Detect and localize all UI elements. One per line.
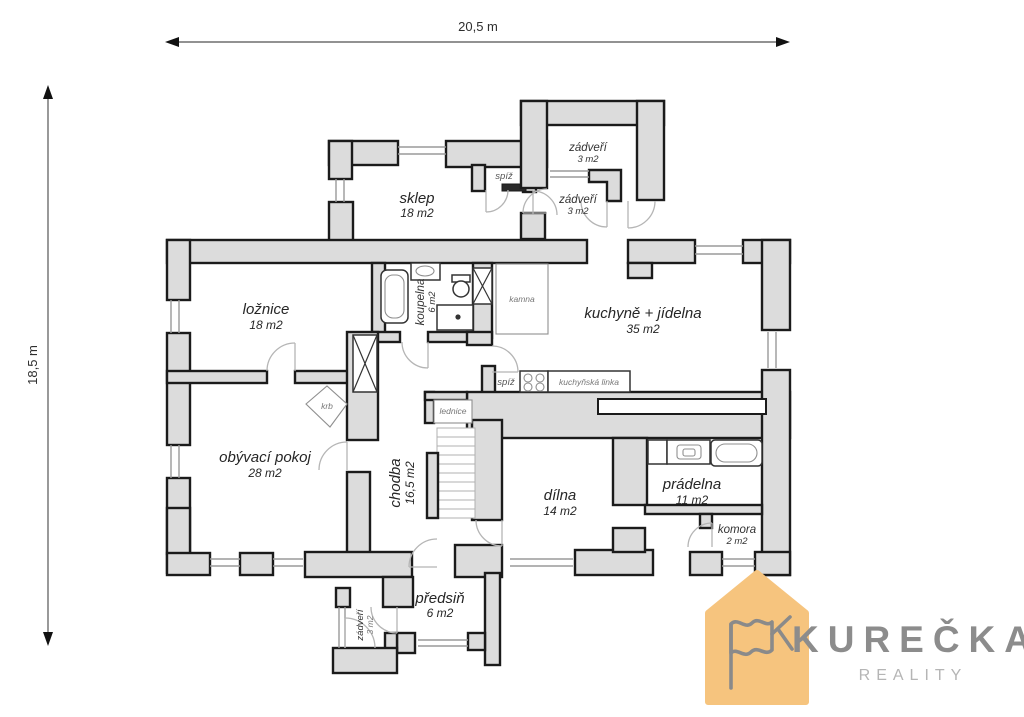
- room-area-kuchyne: 35 m2: [626, 322, 660, 336]
- floor-plan-page: 20,5 m 18,5 m: [0, 0, 1024, 717]
- height-dimension: 18,5 m: [25, 85, 53, 646]
- room-label-obyvaci: obývací pokoj: [219, 449, 311, 466]
- window: [722, 559, 755, 566]
- room-area-zadveri-stredni: 3 m2: [567, 206, 589, 217]
- room-label-pradelna: prádelna: [662, 476, 721, 493]
- room-label-kamna: kamna: [509, 294, 535, 304]
- bath-counter: [437, 305, 473, 330]
- room-label-chodba: chodba: [387, 458, 404, 507]
- room-area-chodba: 16,5 m2: [403, 461, 417, 505]
- bathtub-icon: [711, 440, 762, 466]
- logo-brand-text: KUREČKA: [792, 618, 1024, 660]
- window: [398, 147, 446, 154]
- window: [171, 300, 179, 333]
- room-label-dilna: dílna: [544, 487, 577, 504]
- room-area-zadveri-dolni: 3 m2: [365, 615, 375, 634]
- window: [768, 332, 776, 368]
- floor-plan: 20,5 m 18,5 m: [0, 0, 1024, 717]
- window: [210, 559, 240, 566]
- room-label-komora: komora: [718, 524, 756, 536]
- window: [550, 171, 589, 177]
- room-area-komora: 2 m2: [725, 536, 748, 547]
- door: [267, 343, 295, 371]
- room-area-obyvaci: 28 m2: [247, 466, 282, 480]
- window: [273, 559, 303, 566]
- room-area-koupelna: 6 m2: [427, 291, 438, 313]
- room-area-loznice: 18 m2: [249, 318, 283, 332]
- stairs: [427, 428, 475, 518]
- logo: KUREČKA REALITY: [708, 573, 1024, 702]
- room-label-koupelna: koupelna: [415, 279, 427, 326]
- washing-machine-icon: [667, 440, 710, 464]
- room-area-pradelna: 11 m2: [676, 493, 709, 507]
- stove-icon: [520, 371, 548, 392]
- room-area-dilna: 14 m2: [543, 504, 577, 518]
- room-label-zadveri-horni: zádveří: [568, 142, 609, 154]
- room-label-predsin: předsiň: [414, 590, 464, 607]
- window: [695, 246, 743, 254]
- logo-subtitle-text: REALITY: [859, 667, 968, 684]
- door: [533, 191, 557, 215]
- room-label-spiz-horni: spíž: [495, 171, 513, 182]
- width-dimension: 20,5 m: [165, 19, 790, 47]
- window: [171, 445, 179, 478]
- door: [319, 442, 347, 470]
- window: [418, 640, 468, 646]
- room-area-zadveri-horni: 3 m2: [577, 154, 599, 165]
- label-kuchynska-linka: kuchyňská linka: [559, 377, 619, 387]
- room-area-sklep: 18 m2: [400, 206, 434, 220]
- kitchen-wall-counter: [598, 399, 766, 414]
- door: [409, 539, 437, 567]
- room-area-predsin: 6 m2: [427, 606, 454, 620]
- stair-handrail: [427, 453, 438, 518]
- door: [628, 201, 655, 228]
- walls: [167, 101, 790, 673]
- room-label-kuchyne: kuchyně + jídelna: [584, 305, 701, 322]
- chimney-shaft-icon: [353, 335, 377, 392]
- label-lednice: lednice: [440, 406, 467, 416]
- width-dimension-label: 20,5 m: [458, 19, 498, 34]
- window: [336, 179, 344, 202]
- label-krb: krb: [321, 401, 333, 411]
- room-label-spiz-dolni: spíž: [497, 377, 515, 388]
- window: [339, 607, 345, 648]
- door: [486, 190, 508, 212]
- door: [476, 520, 502, 546]
- room-label-zadveri-stredni: zádveří: [558, 194, 599, 206]
- room-label-sklep: sklep: [399, 190, 434, 207]
- room-label-loznice: ložnice: [243, 301, 290, 318]
- window: [510, 559, 573, 566]
- height-dimension-label: 18,5 m: [25, 345, 40, 385]
- chimney-shaft-icon: [473, 268, 492, 304]
- door: [402, 342, 428, 368]
